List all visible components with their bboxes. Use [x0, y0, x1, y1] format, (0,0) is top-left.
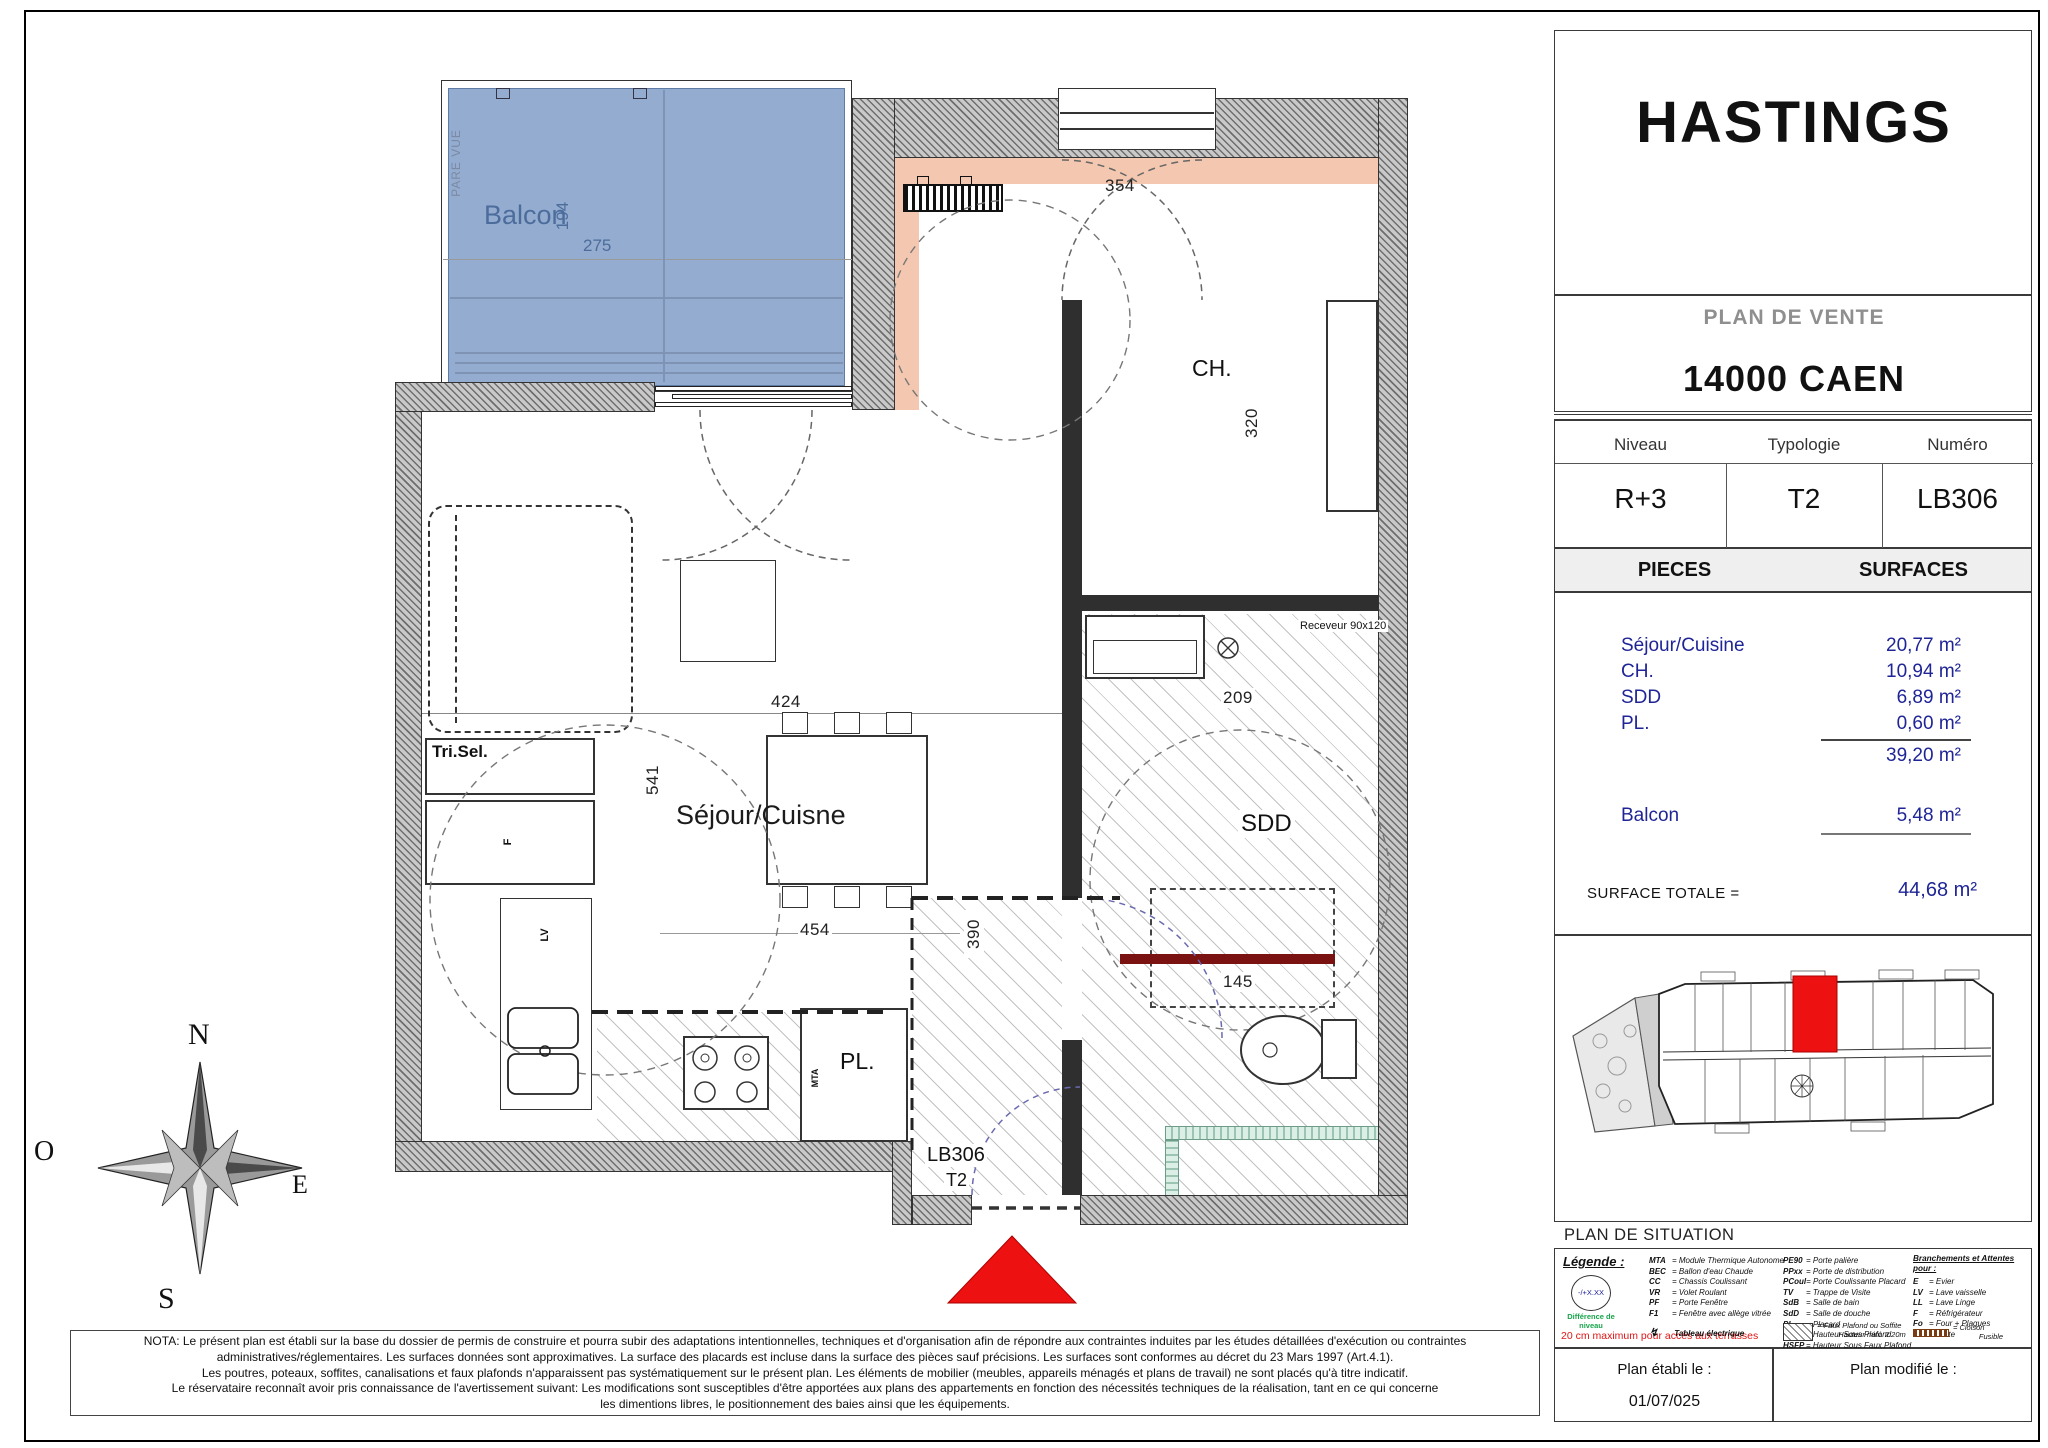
legend-item: PPxx= Porte de distribution — [1783, 1267, 1909, 1278]
balcony-bracket-1 — [496, 88, 510, 99]
green-strip-h — [1165, 1126, 1390, 1140]
total-rule — [1821, 833, 1971, 835]
legend-item: F1= Fenêtre avec allège vitrée — [1649, 1309, 1781, 1320]
legend-item: BEC= Ballon d'eau Chaude — [1649, 1267, 1781, 1278]
dim-209: 209 — [1221, 688, 1255, 708]
typologie-value: T2 — [1726, 483, 1882, 515]
niveau-header: Niveau — [1555, 435, 1726, 455]
sliding-door-panel-1 — [655, 386, 852, 391]
legend-item: SdD= Salle de douche — [1783, 1309, 1909, 1320]
etabli-value: 01/07/025 — [1555, 1393, 1774, 1411]
nota-line-2: administratives/réglementaires. Les surf… — [71, 1350, 1539, 1366]
numero-header: Numéro — [1882, 435, 2033, 455]
dim-145: 145 — [1221, 972, 1255, 992]
surfaces-header: SURFACES — [1794, 559, 2033, 582]
receveur-label: Receveur 90x120 — [1298, 620, 1388, 632]
dim-354: 354 — [1105, 176, 1135, 196]
cloison-caption: = Cloison Fusible — [1953, 1323, 2029, 1341]
faux-plafond-caption: = Faux Plafond ou Soffite Hauteur mini. … — [1817, 1321, 1927, 1339]
pieces-header: PIECES — [1555, 559, 1794, 582]
ch-bed — [1326, 300, 1378, 512]
total-label: SURFACE TOTALE = — [1587, 885, 1740, 902]
wall-left — [395, 382, 422, 1172]
legend-item: PE90= Porte palière — [1783, 1256, 1909, 1267]
wall-bottom-right-b — [1080, 1195, 1408, 1225]
radiator — [903, 184, 1003, 212]
legend-col3-title: Branchements et Attentes pour : — [1913, 1254, 2017, 1274]
ch-room-label: CH. — [1192, 355, 1232, 382]
wall-corner-left — [852, 98, 895, 410]
chair-3 — [886, 712, 912, 734]
dishwasher-label: LV — [539, 920, 551, 950]
chair-5 — [834, 886, 860, 908]
dim-454: 454 — [798, 920, 832, 940]
ch-window — [1058, 88, 1216, 150]
balcony-outline — [441, 80, 852, 392]
surface-value: 20,77 m² — [1886, 635, 1961, 657]
sliding-door-panel-3 — [655, 402, 852, 407]
plan-type-title: PLAN DE VENTE — [1555, 306, 2033, 330]
balcony-slat-3 — [455, 372, 843, 374]
unit-number-label: LB306 — [925, 1144, 987, 1167]
legend-item: PF= Porte Fenêtre — [1649, 1298, 1781, 1309]
legend-box: Légende : -/+X.XX Différence de niveau 2… — [1554, 1248, 2032, 1348]
date-etabli-cell: Plan établi le : 01/07/025 — [1554, 1348, 1773, 1422]
legend-item: LV= Lave vaisselle — [1913, 1288, 2029, 1299]
sliding-door-panel-2 — [672, 394, 852, 399]
legend-item: SdB= Salle de bain — [1783, 1298, 1909, 1309]
wall-balcony-sejour — [395, 382, 655, 412]
surface-row-pl: PL. 0,60 m² — [1621, 713, 1991, 735]
cloison-fusible-line — [1120, 954, 1335, 964]
sofa-backrest — [455, 515, 457, 723]
radiator-bracket-2 — [960, 176, 972, 186]
dim-390: 390 — [964, 910, 984, 958]
surface-row-balcon: Balcon 5,48 m² — [1621, 805, 1991, 827]
nota-line-5: les dimentions libres, le positionnement… — [71, 1397, 1539, 1413]
legend-item: VR= Volet Roulant — [1649, 1288, 1781, 1299]
surface-row-sdd: SDD 6,89 m² — [1621, 687, 1991, 709]
coffee-table — [680, 560, 776, 662]
chair-4 — [782, 886, 808, 908]
legend-item: CC= Chassis Coulissant — [1649, 1277, 1781, 1288]
city-title: 14000 CAEN — [1555, 358, 2033, 400]
balcony-depth-dim: 194 — [553, 194, 573, 238]
ref-line-top — [443, 259, 898, 260]
wall-sdd-left-upper — [1062, 598, 1082, 898]
wall-right — [1378, 98, 1408, 1225]
project-name: HASTINGS — [1555, 89, 2033, 156]
surface-value: 10,94 m² — [1886, 661, 1961, 683]
legend-item-electrical: ↯ Tableau électrique — [1649, 1328, 1781, 1340]
surface-label: CH. — [1621, 661, 1654, 682]
surface-label: SDD — [1621, 687, 1661, 708]
dim-424: 424 — [768, 692, 804, 712]
floor-plan: Balcon 194 275 PARE VUE Tri.Sel. F LV MT… — [0, 0, 1550, 1448]
legend-col1: MTA= Module Thermique Autonome BEC= Ball… — [1649, 1256, 1781, 1339]
legend-item: F= Réfrigérateur — [1913, 1309, 2029, 1320]
surface-subtotal: 39,20 m² — [1886, 745, 1961, 767]
surfaces-box: Séjour/Cuisine 20,77 m² CH. 10,94 m² SDD… — [1554, 592, 2032, 935]
legend-item: PCoul= Porte Coulissante Placard — [1783, 1277, 1909, 1288]
surface-row-ch: CH. 10,94 m² — [1621, 661, 1991, 683]
surface-label: PL. — [1621, 713, 1650, 734]
level-symbol: -/+X.XX — [1571, 1288, 1611, 1297]
modifie-label: Plan modifié le : — [1774, 1361, 2033, 1378]
surface-label: Balcon — [1621, 805, 1679, 826]
plan-type-box: PLAN DE VENTE 14000 CAEN — [1554, 295, 2032, 412]
wall-step — [892, 1141, 912, 1225]
situation-map — [1555, 936, 2029, 1219]
niveau-value: R+3 — [1555, 483, 1726, 515]
total-value: 44,68 m² — [1811, 879, 1977, 902]
faux-plafond-swatch — [1783, 1323, 1813, 1341]
electrical-symbol-icon: ↯ — [1649, 1328, 1672, 1339]
pl-label: PL. — [840, 1048, 875, 1075]
nota-box: NOTA: Le présent plan est établi sur la … — [70, 1330, 1540, 1416]
surface-value: 5,48 m² — [1897, 805, 1961, 827]
compass-n-label: N — [188, 1018, 210, 1052]
balcony-line-h — [450, 297, 843, 299]
surface-value: 6,89 m² — [1897, 687, 1961, 709]
nota-line-3: Les poutres, poteaux, soffites, canalisa… — [71, 1366, 1539, 1382]
wall-ch-left — [1062, 300, 1082, 598]
sdd-vanity-basin — [1093, 640, 1197, 674]
tri-sel-label: Tri.Sel. — [432, 742, 488, 762]
balcony-width-dim: 275 — [583, 236, 611, 256]
surface-value: 0,60 m² — [1897, 713, 1961, 735]
legend-item: LL= Lave Linge — [1913, 1298, 2029, 1309]
nota-line-1: NOTA: Le présent plan est établi sur la … — [71, 1334, 1539, 1350]
subtotal-rule — [1821, 739, 1971, 741]
level-caption: Différence de niveau — [1559, 1313, 1623, 1330]
compass-o-label: O — [34, 1136, 54, 1168]
compass-e-label: E — [292, 1170, 308, 1200]
legend-item: MTA= Module Thermique Autonome — [1649, 1256, 1781, 1267]
chair-6 — [886, 886, 912, 908]
typologie-header: Typologie — [1726, 435, 1882, 455]
balcony-slat-2 — [455, 362, 843, 364]
cloison-swatch — [1913, 1329, 1949, 1337]
title-block: HASTINGS PLAN DE VENTE 14000 CAEN Niveau… — [1554, 30, 2032, 1422]
wall-bottom-left — [395, 1141, 912, 1172]
date-modifie-cell: Plan modifié le : — [1773, 1348, 2032, 1422]
project-name-box: HASTINGS — [1554, 30, 2032, 295]
radiator-bracket-1 — [917, 176, 929, 186]
unit-type-label: T2 — [944, 1170, 969, 1191]
ch-dim-320: 320 — [1242, 401, 1262, 445]
unit-table-rule — [1555, 463, 2033, 464]
wall-ch-bottom — [1082, 595, 1378, 611]
mta-label: MTA — [810, 1058, 820, 1098]
insulation-corner-left — [895, 184, 919, 410]
nota-line-4: Le réservataire reconnaît avoir pris con… — [71, 1381, 1539, 1397]
stove — [683, 1036, 769, 1110]
legend-item: TV= Trappe de Visite — [1783, 1288, 1909, 1299]
situation-box — [1554, 935, 2032, 1222]
etabli-label: Plan établi le : — [1555, 1361, 1774, 1378]
floor-plan-page: { "plan": { "balcony": {"label":"Balcon"… — [0, 0, 2048, 1448]
sdd-room-label: SDD — [1238, 810, 1295, 838]
ch-window-line-1 — [1060, 112, 1214, 114]
sejour-room-label: Séjour/Cuisne — [676, 800, 846, 831]
fridge-label: F — [502, 832, 514, 852]
balcony-slat-1 — [455, 352, 843, 354]
dim-541: 541 — [643, 758, 663, 802]
legend-item: E= Evier — [1913, 1277, 2029, 1288]
legend-title: Légende : — [1563, 1254, 1624, 1269]
sofa — [428, 505, 633, 733]
compass-s-label: S — [158, 1282, 175, 1316]
balcony-divider-v — [663, 90, 665, 382]
ch-window-line-2 — [1060, 128, 1214, 130]
surface-label: Séjour/Cuisine — [1621, 635, 1745, 656]
numero-value: LB306 — [1882, 483, 2033, 515]
pare-vue-label: PARE VUE — [449, 118, 463, 208]
surface-row-sejour: Séjour/Cuisine 20,77 m² — [1621, 635, 1991, 657]
situation-title: PLAN DE SITUATION — [1564, 1226, 1734, 1245]
chair-1 — [782, 712, 808, 734]
wall-sdd-left-lower — [1062, 1040, 1082, 1195]
unit-table: Niveau Typologie Numéro R+3 T2 LB306 — [1554, 420, 2032, 548]
chair-2 — [834, 712, 860, 734]
wall-bottom-right-a — [912, 1195, 972, 1225]
surfaces-header-band: PIECES SURFACES — [1554, 548, 2032, 592]
balcony-bracket-2 — [633, 88, 647, 99]
